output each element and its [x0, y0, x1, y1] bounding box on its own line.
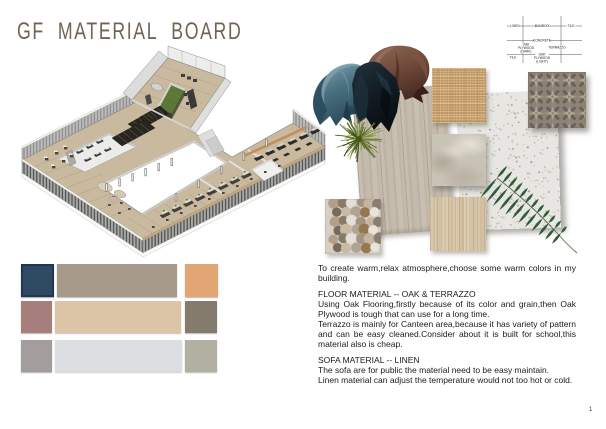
svg-text:CONCRETE: CONCRETE	[533, 39, 551, 43]
svg-text:BAMBOO: BAMBOO	[535, 24, 550, 28]
svg-text:(LIGHT): (LIGHT)	[536, 60, 548, 64]
svg-text:(DARK): (DARK)	[521, 50, 532, 54]
svg-text:LINEN: LINEN	[510, 24, 520, 28]
svg-text:TILE: TILE	[568, 24, 575, 28]
svg-text:TERRAZZO: TERRAZZO	[548, 46, 566, 50]
svg-text:TILE: TILE	[510, 56, 517, 60]
